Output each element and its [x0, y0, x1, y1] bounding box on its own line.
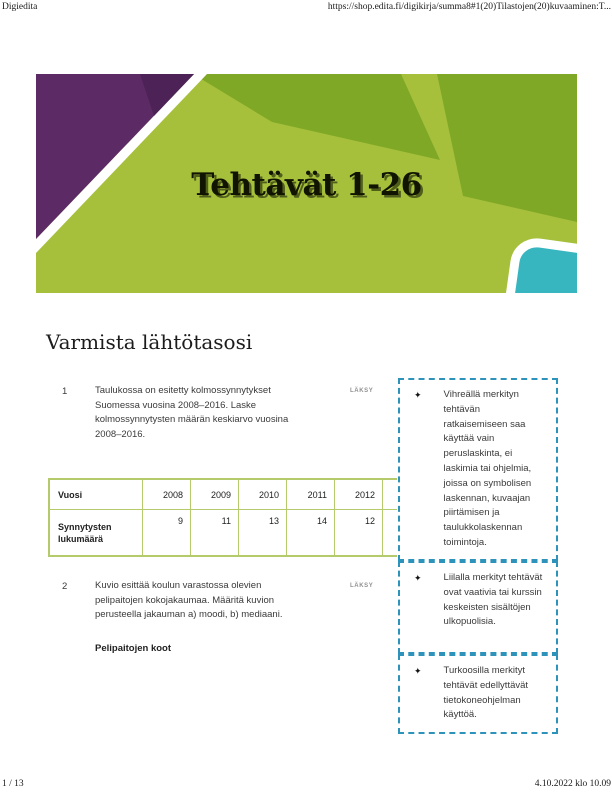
table-cell-value: 13	[239, 510, 287, 557]
print-header-url: https://shop.edita.fi/digikirja/summa8#1…	[328, 2, 611, 12]
table-header-year: 2012	[335, 479, 383, 510]
table-row-label: Synnytysten lukumäärä	[49, 510, 143, 557]
table-header-year: 2011	[287, 479, 335, 510]
homework-tag: LÄKSY	[350, 388, 373, 394]
chapter-banner: Tehtävät 1-26	[36, 74, 577, 293]
table-cell-value: 9	[143, 510, 191, 557]
table-header-vuosi: Vuosi	[49, 479, 143, 510]
homework-tag: LÄKSY	[350, 583, 373, 589]
task-text: Taulukossa on esitetty kolmossynnytykset…	[95, 384, 310, 442]
table-header-year: 2009	[191, 479, 239, 510]
table-header-row: Vuosi 2008 2009 2010 2011 2012 2013 2014	[49, 479, 397, 510]
table-data-row: Synnytysten lukumäärä 9 11 13 14 12 7 7	[49, 510, 397, 557]
four-pointed-star-icon: ✦	[414, 666, 422, 677]
note-text: Liilalla merkityt tehtävät ovat vaativia…	[444, 571, 546, 630]
print-footer-page-number: 1 / 13	[2, 779, 24, 789]
table-cell-value: 14	[287, 510, 335, 557]
four-pointed-star-icon: ✦	[414, 573, 422, 584]
task-chart-title: Pelipaitojen koot	[95, 643, 171, 654]
task-text: Kuvio esittää koulun varastossa olevien …	[95, 579, 310, 623]
banner-title-text: Tehtävät 1-26	[191, 167, 421, 203]
table-cell-value: 12	[335, 510, 383, 557]
note-box-green-rule: ✦ Vihreällä merkityn tehtävän ratkaisemi…	[398, 378, 558, 561]
banner-title: Tehtävät 1-26	[36, 74, 577, 293]
task-number: 1	[62, 386, 67, 397]
table-header-year: 2008	[143, 479, 191, 510]
print-footer-timestamp: 4.10.2022 klo 10.09	[535, 779, 611, 789]
note-box-turquoise-rule: ✦ Turkoosilla merkityt tehtävät edellytt…	[398, 654, 558, 734]
note-text: Turkoosilla merkityt tehtävät edellyttäv…	[444, 664, 546, 723]
section-title: Varmista lähtötasosi	[46, 330, 252, 354]
statistics-table-container: Vuosi 2008 2009 2010 2011 2012 2013 2014…	[48, 478, 397, 557]
statistics-table: Vuosi 2008 2009 2010 2011 2012 2013 2014…	[48, 478, 397, 557]
table-header-year: 2013	[383, 479, 398, 510]
table-cell-value: 11	[191, 510, 239, 557]
task-number: 2	[62, 581, 67, 592]
four-pointed-star-icon: ✦	[414, 390, 422, 401]
note-box-lilac-rule: ✦ Liilalla merkityt tehtävät ovat vaativ…	[398, 561, 558, 654]
table-cell-value: 7	[383, 510, 398, 557]
print-header-site: Digiedita	[2, 2, 37, 12]
table-header-year: 2010	[239, 479, 287, 510]
note-text: Vihreällä merkityn tehtävän ratkaisemise…	[444, 388, 546, 551]
